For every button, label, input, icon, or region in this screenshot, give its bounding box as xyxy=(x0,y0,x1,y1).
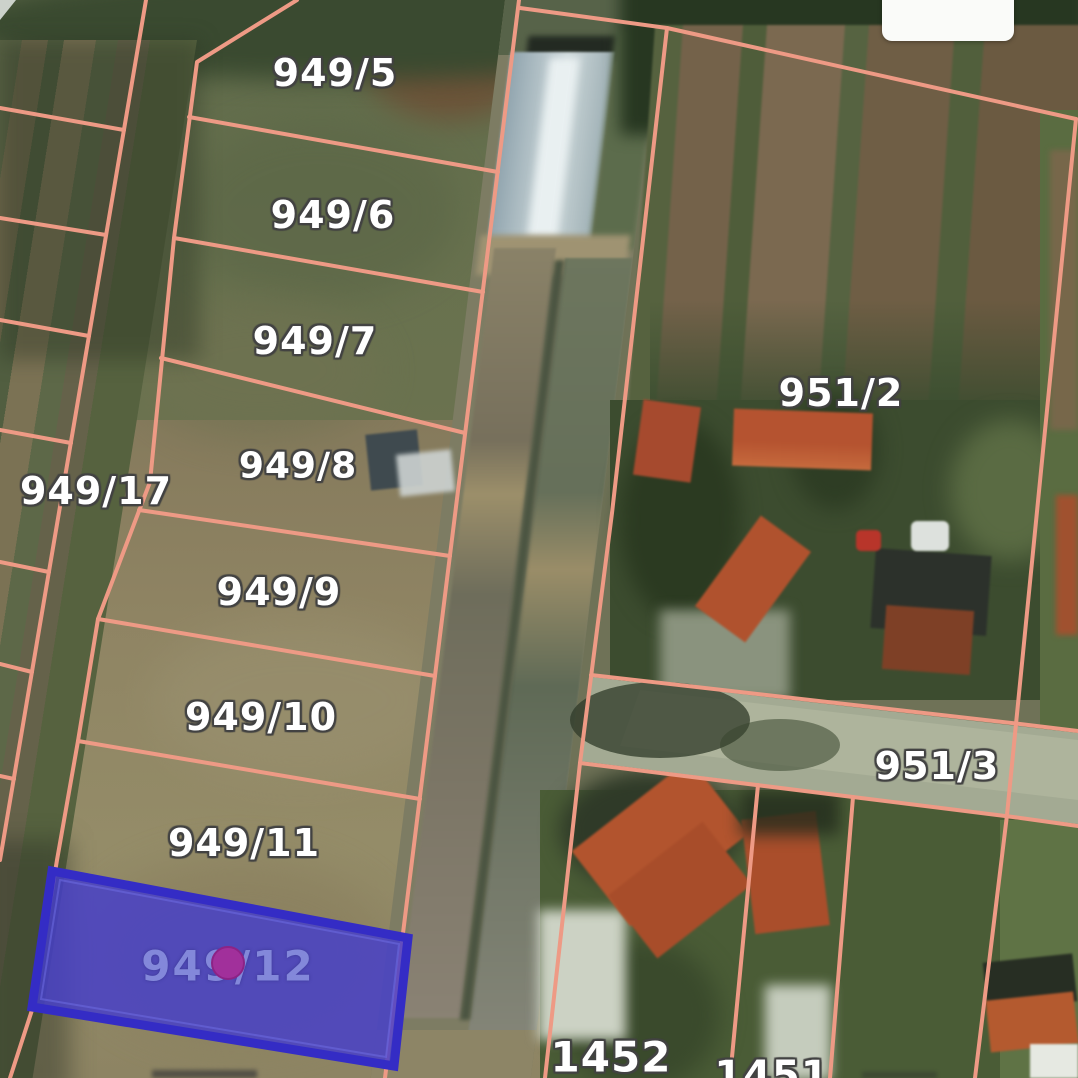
parcel-label-951-3: 951/3 xyxy=(875,744,1000,788)
road-tree-shadow xyxy=(720,719,840,771)
parcel-marker-dot[interactable] xyxy=(211,946,245,980)
map-viewport[interactable]: 949/5 949/6 949/7 949/8 949/9 949/10 949… xyxy=(0,0,1078,1078)
parcel-label-1452: 1452 xyxy=(551,1033,672,1078)
parcel-label-949-17: 949/17 xyxy=(20,469,172,513)
parcel-label-949-6: 949/6 xyxy=(271,193,396,237)
parcel-label-949-8: 949/8 xyxy=(239,446,357,487)
parcel-label-949-7: 949/7 xyxy=(253,319,378,363)
top-right-panel[interactable] xyxy=(882,0,1014,41)
parcel-boundaries-layer xyxy=(0,0,1078,1078)
parcel-label-951-2: 951/2 xyxy=(779,371,904,415)
parcel-label-949-9: 949/9 xyxy=(217,570,342,614)
parcel-label-1451: 1451 xyxy=(714,1053,829,1078)
parcel-label-949-5: 949/5 xyxy=(273,51,398,95)
parcel-label-949-11: 949/11 xyxy=(168,821,320,865)
parcel-label-949-10: 949/10 xyxy=(185,695,337,739)
